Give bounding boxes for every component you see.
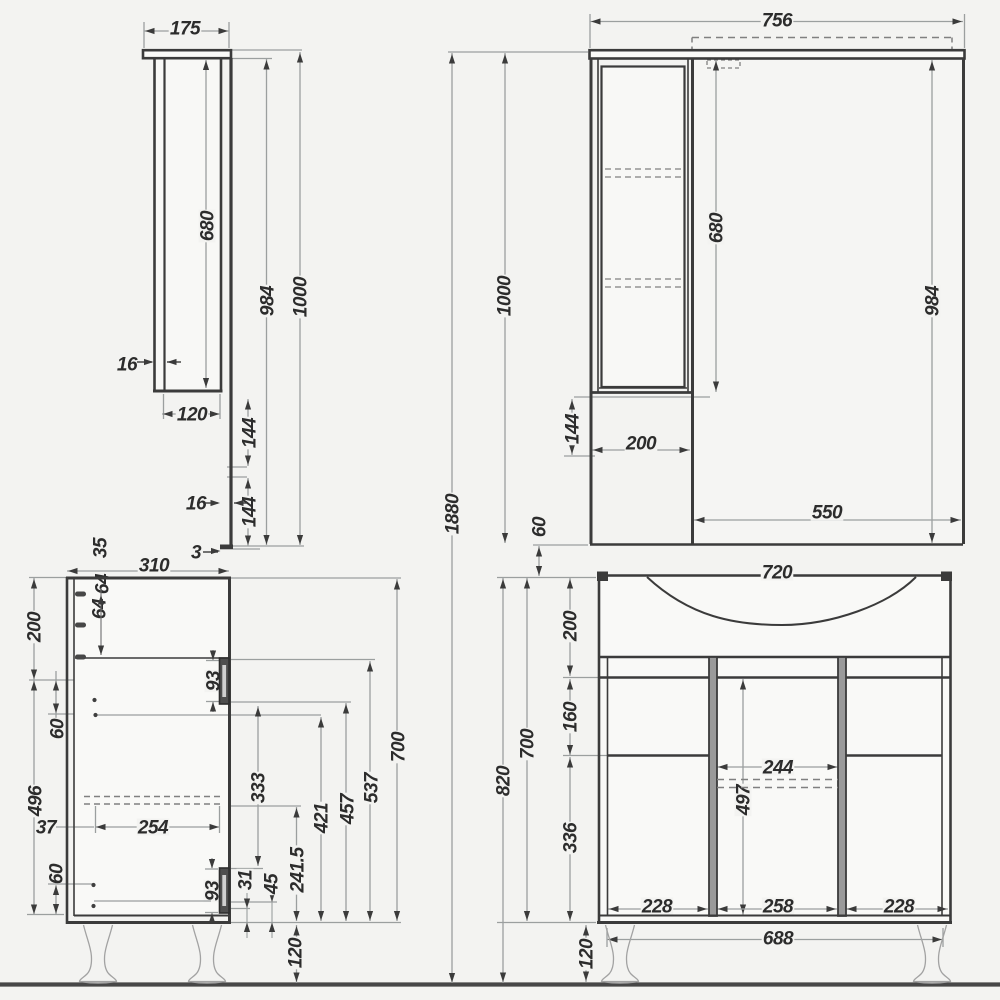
svg-text:37: 37 xyxy=(36,817,58,838)
svg-text:680: 680 xyxy=(706,212,727,243)
svg-text:550: 550 xyxy=(812,502,843,523)
svg-text:31: 31 xyxy=(235,870,256,890)
svg-text:310: 310 xyxy=(139,555,170,576)
svg-text:496: 496 xyxy=(25,785,46,817)
svg-text:60: 60 xyxy=(46,863,67,884)
svg-text:1000: 1000 xyxy=(290,276,311,317)
svg-text:680: 680 xyxy=(197,210,218,241)
svg-text:421: 421 xyxy=(311,803,332,834)
svg-text:3: 3 xyxy=(191,542,202,563)
svg-text:720: 720 xyxy=(762,562,793,583)
svg-text:120: 120 xyxy=(177,404,208,425)
svg-text:160: 160 xyxy=(560,701,581,732)
svg-text:228: 228 xyxy=(641,896,673,917)
svg-text:35: 35 xyxy=(90,537,111,558)
svg-text:1000: 1000 xyxy=(494,275,515,316)
svg-text:144: 144 xyxy=(239,417,260,448)
svg-text:60: 60 xyxy=(47,718,68,739)
svg-text:175: 175 xyxy=(170,18,201,39)
svg-text:700: 700 xyxy=(388,731,409,762)
svg-text:144: 144 xyxy=(562,413,583,444)
svg-text:16: 16 xyxy=(117,354,138,375)
svg-text:16: 16 xyxy=(186,493,207,514)
svg-text:64: 64 xyxy=(92,573,113,594)
svg-text:333: 333 xyxy=(248,772,269,803)
svg-text:984: 984 xyxy=(257,285,278,316)
svg-text:241.5: 241.5 xyxy=(287,847,308,894)
svg-text:60: 60 xyxy=(529,516,550,537)
svg-text:254: 254 xyxy=(137,817,169,838)
svg-text:228: 228 xyxy=(883,896,915,917)
svg-text:537: 537 xyxy=(361,771,382,803)
svg-text:336: 336 xyxy=(560,822,581,853)
svg-text:457: 457 xyxy=(337,792,358,825)
svg-text:200: 200 xyxy=(24,611,45,643)
svg-text:200: 200 xyxy=(560,610,581,642)
svg-text:820: 820 xyxy=(493,765,514,796)
svg-text:200: 200 xyxy=(625,433,657,454)
svg-text:688: 688 xyxy=(763,928,794,949)
svg-text:700: 700 xyxy=(517,728,538,759)
svg-text:756: 756 xyxy=(762,10,793,31)
svg-text:244: 244 xyxy=(762,757,794,778)
svg-text:120: 120 xyxy=(285,937,306,968)
svg-text:1880: 1880 xyxy=(442,493,463,534)
svg-text:984: 984 xyxy=(922,285,943,316)
svg-text:258: 258 xyxy=(762,896,794,917)
svg-text:120: 120 xyxy=(576,938,597,969)
svg-text:45: 45 xyxy=(261,873,282,895)
